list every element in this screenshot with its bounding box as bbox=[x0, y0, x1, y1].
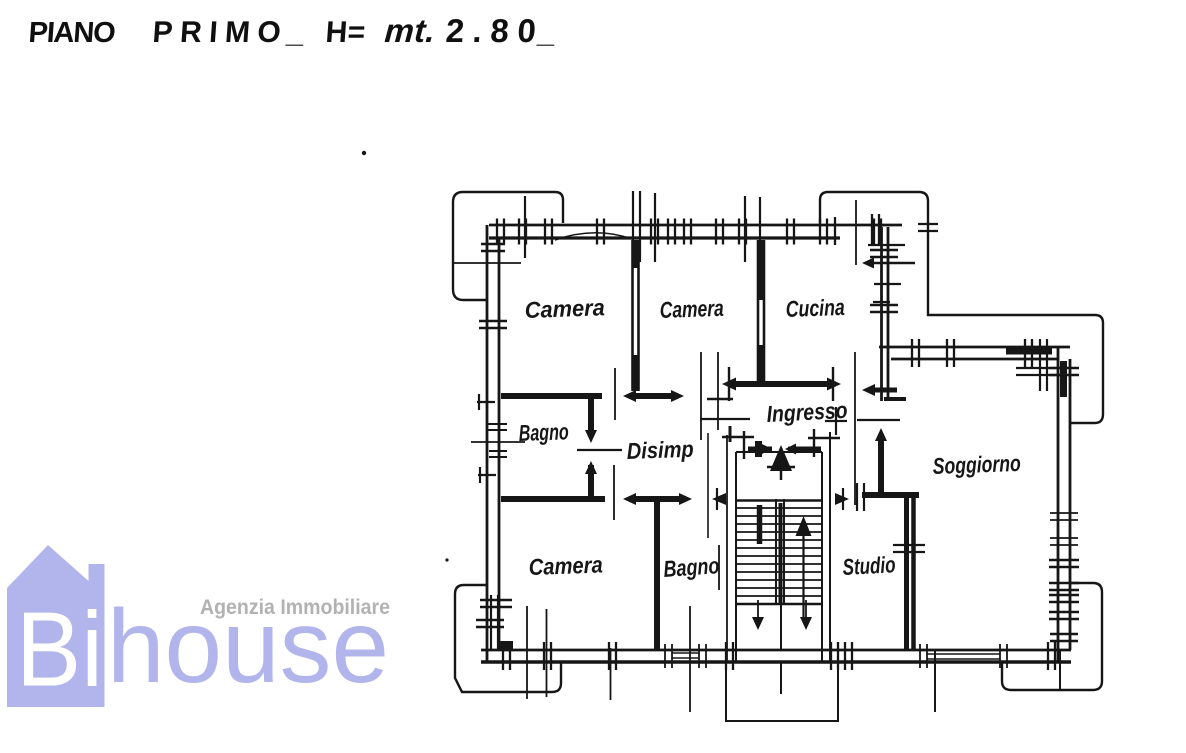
svg-text:Camera: Camera bbox=[659, 295, 724, 323]
svg-text:H: H bbox=[325, 16, 349, 49]
svg-text:Soggiorno: Soggiorno bbox=[932, 450, 1021, 479]
svg-text:Disimp: Disimp bbox=[626, 436, 694, 464]
svg-text:=: = bbox=[347, 16, 367, 49]
svg-text:Camera: Camera bbox=[524, 294, 605, 323]
svg-text:Camera: Camera bbox=[528, 551, 603, 580]
svg-text:Ingresso: Ingresso bbox=[766, 397, 848, 427]
svg-text:PRIMO: PRIMO bbox=[152, 16, 282, 49]
svg-text:Agenzia Immobiliare: Agenzia Immobiliare bbox=[200, 596, 390, 619]
svg-text:PIANO: PIANO bbox=[28, 17, 117, 49]
svg-text:2.80: 2.80 bbox=[445, 13, 538, 50]
svg-text:_: _ bbox=[285, 14, 306, 49]
svg-text:Bagno: Bagno bbox=[518, 418, 569, 446]
svg-text:mt.: mt. bbox=[384, 13, 437, 50]
svg-text:_: _ bbox=[536, 14, 557, 49]
svg-text:Studio: Studio bbox=[842, 551, 896, 580]
svg-text:Bi: Bi bbox=[16, 591, 103, 709]
svg-text:Cucina: Cucina bbox=[785, 294, 845, 322]
svg-text:Bagno: Bagno bbox=[663, 552, 721, 582]
